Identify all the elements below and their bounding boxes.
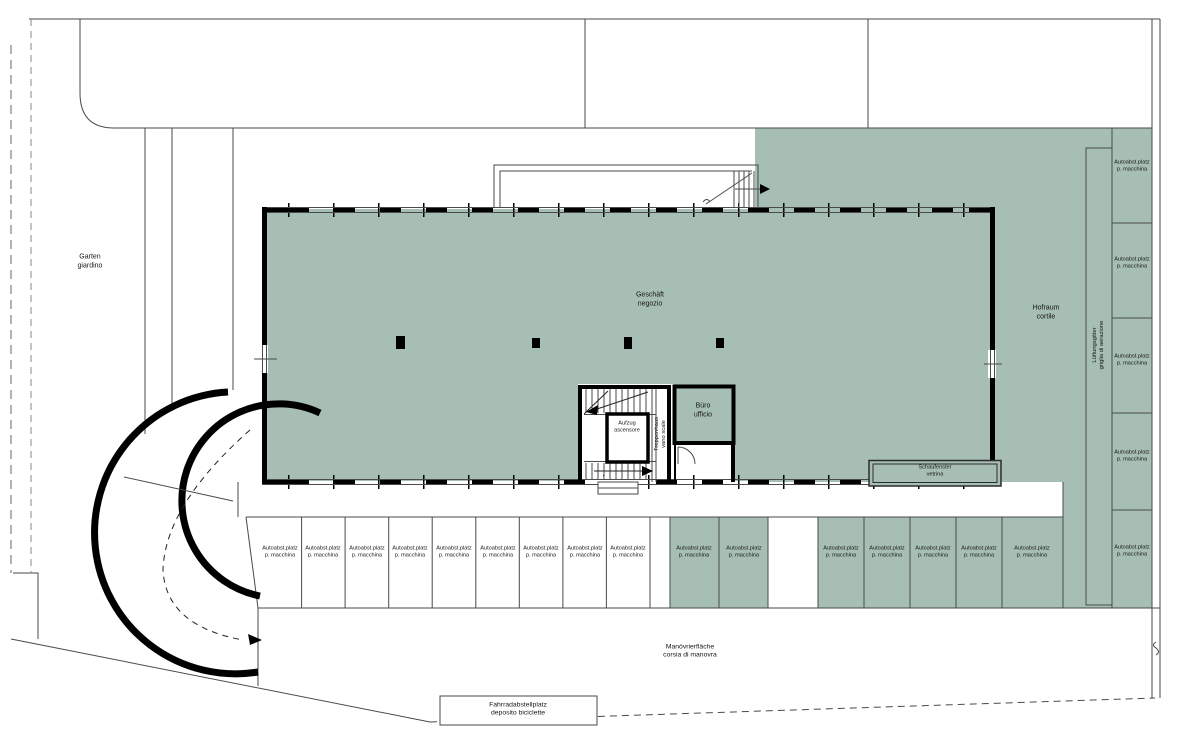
label-vent-grille: Lüftungsgittergriglia di aerazione [1092,321,1106,370]
parking-stall-label: Autoabst.platzp. macchina [262,546,297,561]
parking-stall-label: Autoabst.platzp. macchina [676,546,711,561]
stall-gap-zone [768,517,818,608]
label-garden: Gartengiardino [78,253,103,271]
parking-stall-label: Autoabst.platzp. macchina [1114,257,1149,272]
parking-stall-label: Autoabst.platzp. macchina [915,546,950,561]
label-stairwell: Treppenhausvano scale [654,417,668,451]
column [396,336,405,349]
parking-stall-label: Autoabst.platzp. macchina [567,546,602,561]
parking-stall-label: Autoabst.platzp. macchina [869,546,904,561]
parking-stall-label: Autoabst.platzp. macchina [436,546,471,561]
label-elevator: Aufzugascensore [614,421,640,436]
parking-stall-label: Autoabst.platzp. macchina [726,546,761,561]
drive-path [163,430,250,640]
label-courtyard: Hofraumcortile [1033,304,1060,322]
column [532,338,540,348]
parking-stall-label: Autoabst.platzp. macchina [480,546,515,561]
label-office: Büroufficio [694,402,712,420]
zone-fills [238,128,1152,608]
canopy [494,165,770,207]
parking-stall-label: Autoabst.platzp. macchina [610,546,645,561]
label-display-window: Schaufenstervetrina [919,465,952,480]
label-bike-shed: Fahrradabstellplatzdeposito biciclette [489,702,547,719]
walkway-zone [238,482,1063,517]
drive-path-arrow [248,634,262,645]
floor-plan-canvas: Gartengiardino Geschäftnegozio Hofraumco… [0,0,1200,734]
parking-stall-label: Autoabst.platzp. macchina [823,546,858,561]
parking-stall-label: Autoabst.platzp. macchina [349,546,384,561]
column [624,337,632,349]
column [716,338,724,348]
plan-drawing [0,0,1200,734]
parking-stall-label: Autoabst.platzp. macchina [1114,160,1149,175]
parking-stall-label: Autoabst.platzp. macchina [1114,354,1149,369]
parking-stall-label: Autoabst.platzp. macchina [1014,546,1049,561]
parking-stall-label: Autoabst.platzp. macchina [1114,545,1149,560]
parking-stall-label: Autoabst.platzp. macchina [305,546,340,561]
label-maneuver-area: Manövrierflächecorsia di manovra [663,644,717,661]
ramp-outer-wall [95,392,258,674]
parking-stall-label: Autoabst.platzp. macchina [961,546,996,561]
parking-stall-label: Autoabst.platzp. macchina [1114,450,1149,465]
label-shop: Geschäftnegozio [636,291,664,309]
parking-stall-label: Autoabst.platzp. macchina [392,546,427,561]
parking-stall-label: Autoabst.platzp. macchina [523,546,558,561]
